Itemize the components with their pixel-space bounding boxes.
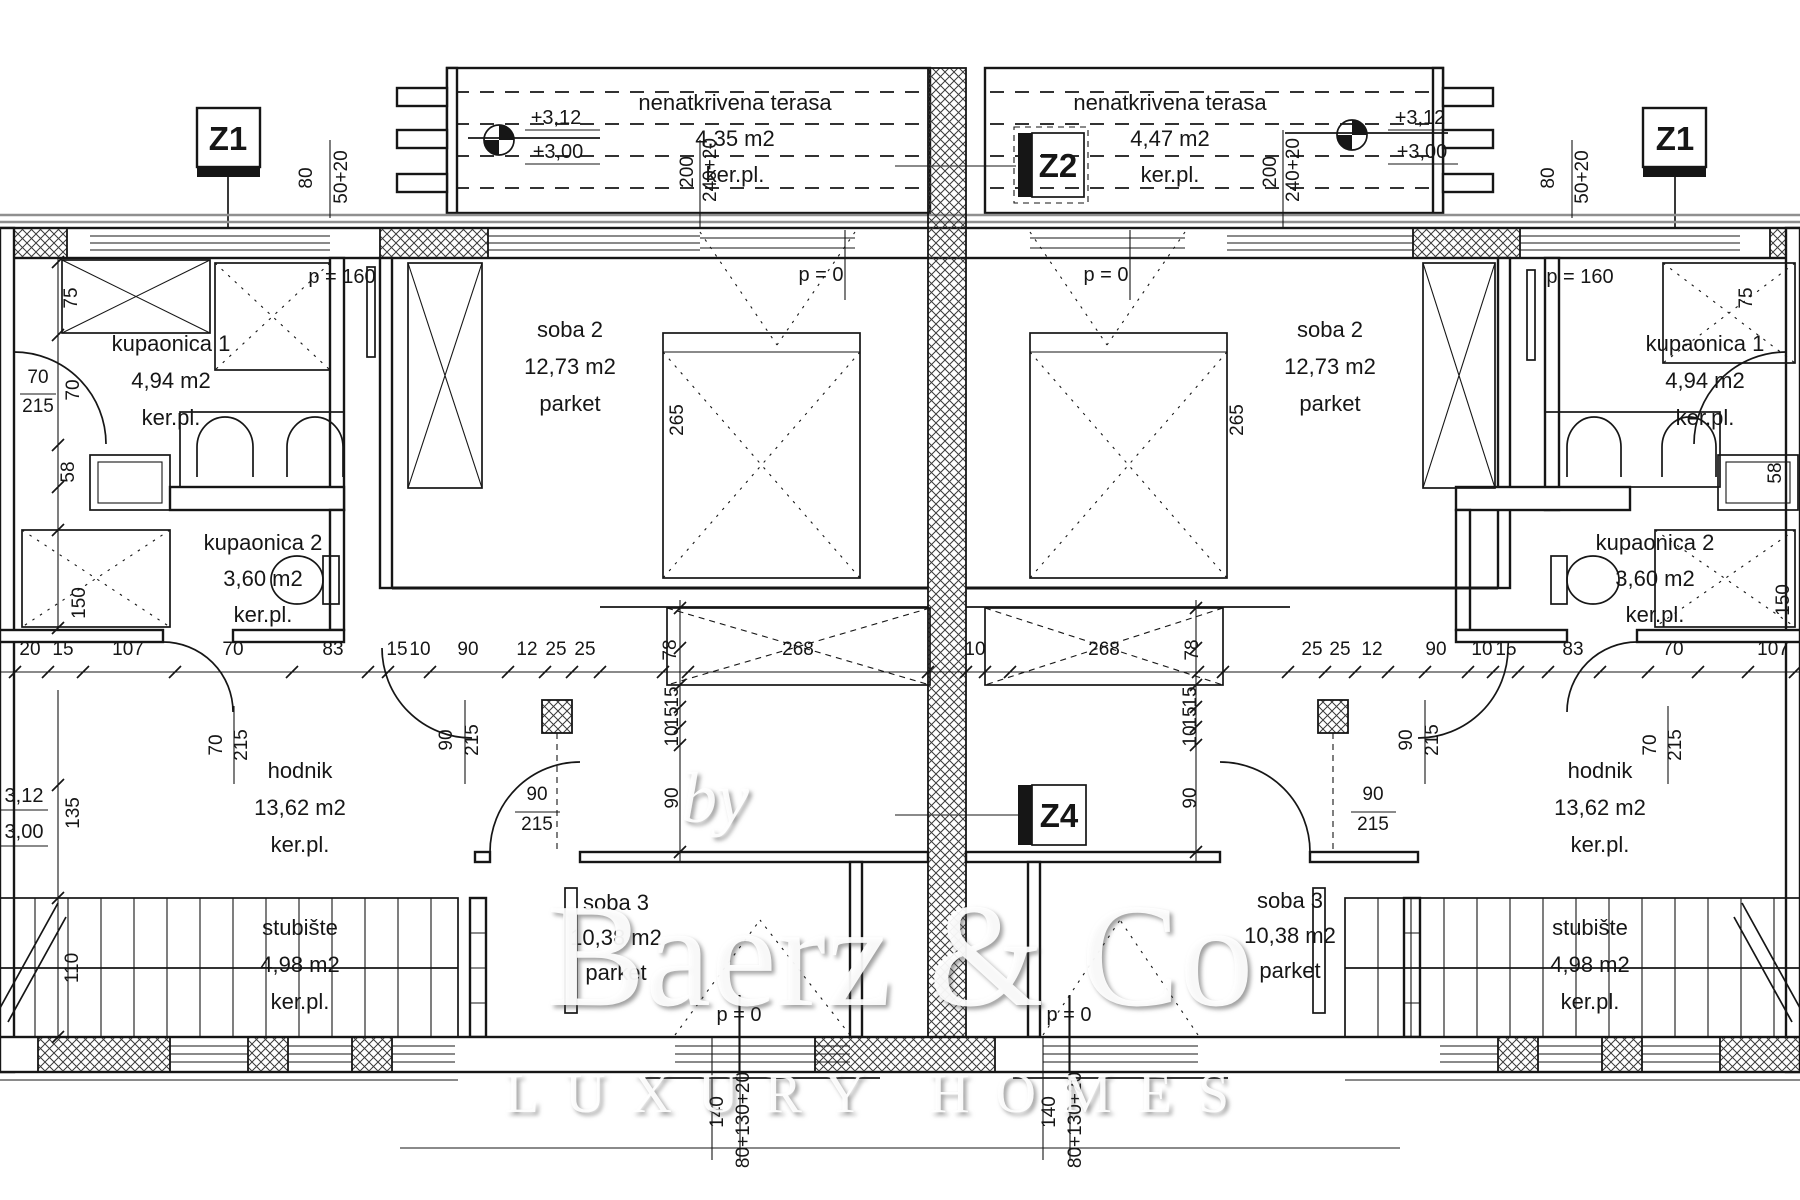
room-floor-finish: parket bbox=[1259, 958, 1320, 983]
dimension-label: 90 bbox=[662, 787, 683, 808]
dimension-label: 12 bbox=[516, 639, 537, 660]
dimension-label: 70 bbox=[222, 639, 243, 660]
dimension-label: 110 bbox=[62, 953, 83, 983]
zone-label-z1-left: Z1 bbox=[209, 120, 248, 157]
room-name: kupaonica 1 bbox=[112, 331, 231, 356]
dimension-label: 70 bbox=[1662, 639, 1683, 660]
dimension-label: 15 bbox=[52, 639, 73, 660]
dimension-label: 10 bbox=[1471, 639, 1492, 660]
room-floor-finish: ker.pl. bbox=[1561, 989, 1620, 1014]
room-floor-finish: ker.pl. bbox=[1141, 162, 1200, 187]
room-floor-finish: ker.pl. bbox=[271, 989, 330, 1014]
room-name: stubište bbox=[1552, 915, 1628, 940]
room-floor-finish: ker.pl. bbox=[142, 405, 201, 430]
dimension-label: +3,00 bbox=[1397, 141, 1448, 163]
dimension-label: 10 bbox=[662, 725, 683, 746]
room-name: nenatkrivena terasa bbox=[1073, 90, 1267, 115]
dimension-label: 90 bbox=[1362, 784, 1383, 805]
dimension-label: 3,00 bbox=[5, 821, 44, 843]
dimension-label: +3,12 bbox=[1395, 107, 1446, 129]
dimension-label: 25 bbox=[1301, 639, 1322, 660]
dimension-label: 83 bbox=[322, 639, 343, 660]
dimension-label: 15 bbox=[662, 706, 683, 727]
room-name: soba 2 bbox=[1297, 317, 1363, 342]
room-area: 4,98 m2 bbox=[260, 952, 340, 977]
room-name: stubište bbox=[262, 915, 338, 940]
dimension-label: 107 bbox=[1757, 639, 1789, 660]
room-area: 13,62 m2 bbox=[254, 795, 346, 820]
dimension-label: 15 bbox=[386, 639, 407, 660]
room-name: hodnik bbox=[1568, 758, 1634, 783]
room-area: 3,60 m2 bbox=[1615, 566, 1695, 591]
room-name: hodnik bbox=[268, 758, 334, 783]
dimension-label: 215 bbox=[521, 814, 553, 835]
room-area: 4,47 m2 bbox=[1130, 126, 1210, 151]
dimension-label: 75 bbox=[61, 287, 82, 308]
dimension-label: 200 bbox=[1260, 156, 1281, 188]
dimension-label: 10 bbox=[964, 639, 985, 660]
room-area: 13,62 m2 bbox=[1554, 795, 1646, 820]
dimension-label: 265 bbox=[667, 404, 688, 436]
room-area: 12,73 m2 bbox=[1284, 354, 1376, 379]
dimension-label: 25 bbox=[574, 639, 595, 660]
dimension-label: 50+20 bbox=[331, 150, 352, 203]
dimension-label: p = 0 bbox=[798, 264, 843, 286]
room-name: soba 3 bbox=[1257, 888, 1323, 913]
dimension-label: p = 160 bbox=[1546, 266, 1613, 288]
dimension-label: 90 bbox=[1396, 729, 1417, 750]
dimension-label: 70 bbox=[206, 734, 227, 755]
room-area: 12,73 m2 bbox=[524, 354, 616, 379]
floor-plan-page: Z1 Z1 Z2 Z4 bbox=[0, 0, 1800, 1200]
dimension-label: 12 bbox=[1361, 639, 1382, 660]
dimension-label: 80 bbox=[296, 167, 317, 188]
dimension-label: 50+20 bbox=[1572, 150, 1593, 203]
dimension-label: 90 bbox=[1425, 639, 1446, 660]
room-name: kupaonica 2 bbox=[1596, 530, 1715, 555]
dimension-label: 3,12 bbox=[5, 785, 44, 807]
watermark-prefix: by bbox=[681, 758, 749, 838]
dimension-label: 215 bbox=[22, 396, 54, 417]
dimension-label: 70 bbox=[27, 367, 48, 388]
dimension-label: 265 bbox=[1227, 404, 1248, 436]
room-area: 4,94 m2 bbox=[131, 368, 211, 393]
dimension-label: 15 bbox=[662, 686, 683, 707]
zone-box-z1-right: Z1 bbox=[1643, 108, 1706, 228]
room-floor-finish: ker.pl. bbox=[271, 832, 330, 857]
floor-plan-drawing: Z1 Z1 Z2 Z4 bbox=[0, 0, 1800, 1200]
dimension-label: 90 bbox=[1180, 787, 1201, 808]
dimension-label: 10 bbox=[409, 639, 430, 660]
dimension-label: 215 bbox=[462, 724, 483, 756]
dimension-label: 70 bbox=[1640, 734, 1661, 755]
room-name: kupaonica 2 bbox=[204, 530, 323, 555]
dimension-label: 107 bbox=[112, 639, 144, 660]
dimension-label: 20 bbox=[19, 639, 40, 660]
dimension-label: 215 bbox=[1422, 724, 1443, 756]
zone-box-z4: Z4 bbox=[895, 785, 1086, 845]
dimension-label: 268 bbox=[782, 639, 814, 660]
dimension-label: 200 bbox=[677, 156, 698, 188]
dimension-label: 268 bbox=[1088, 639, 1120, 660]
dimension-label: 78 bbox=[1182, 639, 1203, 660]
dimension-label: 75 bbox=[1736, 287, 1757, 308]
room-floor-finish: ker.pl. bbox=[1626, 602, 1685, 627]
dimension-label: 215 bbox=[1665, 729, 1686, 761]
dimension-label: 58 bbox=[1765, 462, 1786, 483]
room-floor-finish: ker.pl. bbox=[234, 602, 293, 627]
room-floor-finish: parket bbox=[1299, 391, 1360, 416]
room-floor-finish: ker.pl. bbox=[1676, 405, 1735, 430]
dimension-label: 15 bbox=[1180, 686, 1201, 707]
room-floor-finish: ker.pl. bbox=[1571, 832, 1630, 857]
dimension-label: 240+20 bbox=[1283, 138, 1304, 202]
room-floor-finish: parket bbox=[539, 391, 600, 416]
room-name: soba 2 bbox=[537, 317, 603, 342]
watermark-tagline: LUXURY HOMES bbox=[505, 1063, 1255, 1125]
dimension-label: 25 bbox=[1329, 639, 1350, 660]
dimension-label: 58 bbox=[58, 461, 79, 482]
dimension-label: 15 bbox=[1495, 639, 1516, 660]
dimension-label: 240+20 bbox=[700, 138, 721, 202]
dimension-label: 90 bbox=[526, 784, 547, 805]
dimension-label: 15 bbox=[1180, 706, 1201, 727]
room-area: 4,94 m2 bbox=[1665, 368, 1745, 393]
zone-box-z1-left: Z1 bbox=[197, 108, 260, 228]
dimension-label: +3,12 bbox=[531, 107, 582, 129]
room-area: 4,98 m2 bbox=[1550, 952, 1630, 977]
dimension-label: +3,00 bbox=[533, 141, 584, 163]
dimension-label: 90 bbox=[436, 729, 457, 750]
dimension-label: 80 bbox=[1538, 167, 1559, 188]
zone-label-z4: Z4 bbox=[1040, 797, 1079, 834]
dimension-label: 70 bbox=[63, 379, 84, 400]
watermark-brand: Baerz & Co bbox=[547, 874, 1254, 1038]
dimension-label: p = 160 bbox=[308, 266, 375, 288]
zone-label-z1-right: Z1 bbox=[1656, 120, 1695, 157]
room-area: 10,38 m2 bbox=[1244, 923, 1336, 948]
dimension-label: 150 bbox=[69, 587, 90, 619]
dimension-label: 83 bbox=[1562, 639, 1583, 660]
dimension-label: 78 bbox=[660, 639, 681, 660]
dimension-label: 215 bbox=[231, 729, 252, 761]
zone-label-z2: Z2 bbox=[1039, 147, 1078, 184]
dimension-label: 150 bbox=[1773, 584, 1794, 616]
room-name: nenatkrivena terasa bbox=[638, 90, 832, 115]
dimension-label: 135 bbox=[63, 797, 84, 829]
dimension-label: 10 bbox=[1180, 725, 1201, 746]
watermark: by Baerz & Co LUXURY HOMES bbox=[505, 758, 1255, 1125]
room-area: 3,60 m2 bbox=[223, 566, 303, 591]
dimension-label: 90 bbox=[457, 639, 478, 660]
dimension-label: 25 bbox=[545, 639, 566, 660]
dimension-label: 215 bbox=[1357, 814, 1389, 835]
room-name: kupaonica 1 bbox=[1646, 331, 1765, 356]
dimension-label: p = 0 bbox=[1083, 264, 1128, 286]
